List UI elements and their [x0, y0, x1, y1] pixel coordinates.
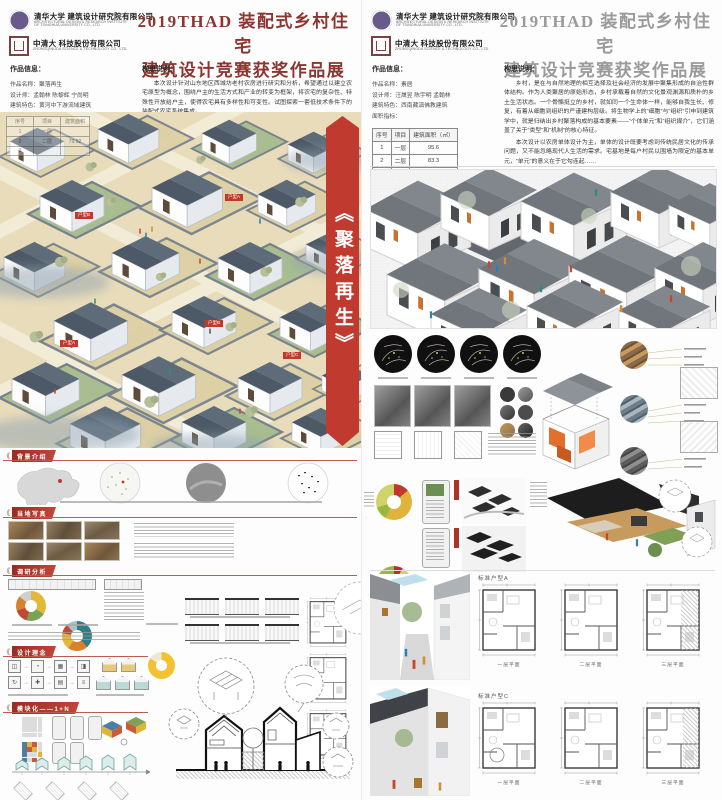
site-dot-map-circle	[100, 463, 140, 503]
growth-timeline	[10, 752, 150, 778]
house-type-tag: 户型C	[283, 352, 301, 359]
survey-donut-3-caption	[146, 623, 178, 625]
elevation-row-2	[185, 624, 299, 641]
circle-caption	[464, 377, 494, 379]
tsinghua-emblem-icon	[371, 10, 392, 31]
village-illustration: 序号 项目 建筑面积 1一层 2二层79.92 3 户型A 户型B 户型B 户型…	[0, 112, 361, 448]
floor-plan	[559, 582, 623, 660]
floor-plan	[477, 700, 541, 778]
poster-title-line1: 2019THAD 装配式乡村住宅	[136, 10, 351, 59]
flow-icon: ◔	[31, 660, 44, 673]
plan-caption: 三层平面	[641, 661, 705, 668]
project-banner-text: 《聚落再生》	[329, 203, 356, 359]
tsinghua-emblem-icon	[9, 10, 30, 31]
house-prototype-icon	[102, 658, 117, 672]
photo-notes-lines	[134, 523, 234, 537]
site-analysis-band	[362, 333, 722, 477]
village-area-table: 序号 项目 建筑面积 1一层 2二层79.92 3	[6, 116, 90, 156]
section-mark: 《	[3, 705, 10, 712]
circle-caption	[507, 377, 537, 379]
donut-tick-labels	[364, 492, 374, 508]
module-cards-row1	[52, 716, 102, 740]
elevation-chip	[265, 598, 299, 615]
floor-plan-cell: 三层平面	[641, 700, 705, 786]
elevation-chip	[225, 598, 259, 615]
floor-plan-cell: 一层平面	[477, 582, 541, 668]
section-mark: 《	[3, 510, 10, 517]
construction-detail-sketch	[680, 421, 718, 453]
background-graphics	[8, 463, 353, 505]
floor-plan	[641, 700, 705, 778]
poster-title-line1: 2019THAD 装配式乡村住宅	[498, 10, 713, 59]
prototype-caption-line	[96, 694, 144, 696]
texture-circle	[500, 387, 515, 402]
local-photo	[84, 521, 120, 540]
elevation-chip	[265, 624, 299, 641]
material-circle-wall	[620, 395, 648, 423]
site-model-a	[462, 478, 526, 524]
plan-caption: 一层平面	[477, 779, 541, 786]
module-cluster-icons	[100, 714, 148, 748]
module-card	[52, 716, 66, 740]
iso-plan-diamond	[13, 781, 33, 800]
bw-photo	[374, 385, 411, 427]
site-analysis-circle	[374, 335, 412, 373]
floor-plan-cell: 一层平面	[477, 700, 541, 786]
type-a-donut	[376, 484, 412, 520]
building-section-drawing	[168, 652, 358, 797]
plan-row-2: 一层平面 二层平面 三层平面	[477, 700, 705, 786]
site-texture-circle	[288, 463, 328, 503]
material-circle-base	[620, 447, 648, 475]
street-perspective-2	[370, 686, 470, 796]
section-mark: 《	[3, 568, 10, 575]
elevation-chip	[185, 624, 219, 641]
org2-name-en: ZHONGQINGDA SCIENCE & TECHNOLOGY CO., LT…	[33, 48, 127, 52]
section-divider	[3, 712, 148, 713]
plan-sketch	[374, 431, 402, 459]
work-designers: 设计师：汪晟昱 陈宇明 孟翰林	[372, 91, 494, 102]
concept-text-p2: 本次设计以农房单体设计为主，单体的设计既要考虑到传统民居文化的传承问题，又不能忽…	[504, 139, 714, 167]
exhibition-board: 清华大学 建筑设计研究院有限公司 ARCHITECTURAL DESIGN & …	[0, 0, 722, 800]
texture-circle	[518, 405, 533, 420]
section-divider	[3, 656, 148, 657]
house-prototype-row-yellow	[102, 658, 136, 672]
elevation-chip	[185, 598, 219, 615]
floor-plan	[477, 582, 541, 660]
texture-circle	[500, 405, 515, 420]
house-type-tag: 户型A	[225, 194, 243, 201]
section-mark: 《	[3, 649, 10, 656]
elevation-caption-line	[190, 642, 290, 644]
work-name: 作品名称：聚落再生	[10, 80, 132, 91]
concept-heading: 构思说明：	[504, 64, 714, 74]
local-photo	[8, 542, 44, 561]
legend-photo-chip	[426, 484, 444, 496]
org2-name-en: ZHONGQINGDA SCIENCE & TECHNOLOGY CO., LT…	[395, 48, 489, 52]
iso-plan-diamond	[45, 781, 65, 800]
work-info-heading: 作品信息：	[10, 64, 132, 74]
flow-icon: ↻	[8, 676, 21, 689]
work-area-label: 面积指标：	[372, 112, 494, 123]
work-designers: 设计师：孟翰林 陈黎辉 宁尚明	[10, 91, 132, 102]
flow-caption-line	[8, 694, 68, 696]
flow-icon: ≡	[77, 676, 90, 689]
work-feature: 建筑特色：黄河中下游流域建筑	[10, 101, 132, 112]
plan-caption: 三层平面	[641, 779, 705, 786]
elevation-caption-line	[190, 616, 290, 618]
module-card	[70, 716, 84, 740]
house-type-tag: 户型B	[205, 320, 223, 327]
ov-h1: 序号	[7, 117, 34, 127]
plan-sketch	[414, 431, 442, 459]
zhongqingda-emblem-icon	[9, 36, 29, 56]
flow-icon: ▦	[54, 660, 67, 673]
elevation-row-1	[185, 598, 299, 615]
survey-table-strip	[8, 579, 96, 590]
house-type-tag: 户型A	[60, 340, 78, 347]
material-leader-lines	[648, 341, 718, 477]
iso-plan-diamonds	[14, 782, 128, 800]
survey-donut-1	[16, 591, 46, 621]
local-photo	[46, 542, 82, 561]
plan-caption: 一层平面	[477, 661, 541, 668]
legend-icon-lines	[426, 500, 444, 518]
survey-donut-2-caption	[58, 624, 98, 626]
project-banner: 《聚落再生》	[326, 116, 359, 446]
red-seal-tag	[454, 528, 459, 548]
floor-plan-cell: 三层平面	[641, 582, 705, 668]
interior-cutaway-render	[547, 478, 717, 568]
plan-row-2-label: 标准户型C	[478, 692, 509, 700]
survey-notes-lines	[104, 592, 144, 622]
house-prototype-icon	[134, 676, 149, 690]
floor-plan	[559, 700, 623, 778]
local-photo	[8, 521, 44, 540]
flow-icon: ◨	[77, 660, 90, 673]
plan-sketch	[454, 431, 482, 459]
local-photo	[84, 542, 120, 561]
section-divider	[3, 575, 357, 576]
house-type-tag: 户型B	[75, 212, 93, 219]
plan-row-1: 一层平面 二层平面 三层平面	[477, 582, 705, 668]
aerial-render	[370, 169, 717, 329]
bw-photo	[414, 385, 451, 427]
house-prototype-row-teal	[96, 676, 149, 690]
work-feature: 建筑特色：西南藏滇佛教建筑	[372, 101, 494, 112]
aerial-render-svg	[371, 170, 716, 328]
plan-row-1-label: 标准户型A	[478, 574, 509, 582]
village-axonometric	[0, 112, 361, 448]
poster-juluo-zaisheng: 清华大学 建筑设计研究院有限公司 ARCHITECTURAL DESIGN & …	[0, 0, 361, 800]
background-caption-line	[60, 501, 322, 503]
iso-plan-diamond	[77, 781, 97, 800]
survey-table-strip	[104, 579, 142, 590]
analysis-notes-lines	[488, 433, 536, 457]
flow-icon: ◫	[8, 660, 21, 673]
house-prototype-icon	[121, 658, 136, 672]
bottom-divider	[370, 570, 715, 571]
exploded-axon	[537, 369, 615, 475]
elevation-chip	[225, 624, 259, 641]
ov-h3: 建筑面积	[61, 117, 90, 127]
red-seal-tag	[454, 480, 459, 500]
section-mark: 《	[3, 453, 10, 460]
site-analysis-circle	[460, 335, 498, 373]
floor-plan-cell: 二层平面	[559, 700, 623, 786]
floor-plan-cell: 二层平面	[559, 582, 623, 668]
section-divider	[3, 460, 357, 461]
circle-caption	[378, 377, 408, 379]
concept-text-p1: 乡村，是在与自然地理的相互选择及社会经济的发展中聚集形成的自治性群体结构。作为人…	[504, 80, 714, 137]
work-info-heading: 作品信息：	[372, 64, 494, 74]
china-map	[18, 468, 79, 505]
site-analysis-circle	[417, 335, 455, 373]
floor-plan	[641, 582, 705, 660]
info-divider	[370, 166, 715, 167]
plan-caption: 二层平面	[559, 779, 623, 786]
street-perspective-1	[370, 574, 470, 680]
concept-heading: 构思说明：	[142, 64, 352, 74]
type-analysis-band	[362, 478, 722, 568]
survey-donut-1-caption	[12, 624, 52, 626]
iso-plan-diamond	[109, 781, 129, 800]
local-photo-grid	[8, 521, 126, 562]
survey-summary-lines	[8, 632, 140, 642]
ov-h2: 项目	[34, 117, 61, 127]
material-circle-roof	[620, 341, 648, 369]
module-grid-plain	[22, 717, 42, 737]
bw-photo	[454, 385, 491, 427]
construction-detail-sketch	[680, 367, 718, 399]
house-prototype-icon	[115, 676, 130, 690]
circle-caption	[421, 377, 451, 379]
photo-notes-lines	[134, 543, 234, 560]
local-photo	[46, 521, 82, 540]
poster-su-ju: 清华大学 建筑设计研究院有限公司 ARCHITECTURAL DESIGN & …	[361, 0, 722, 800]
texture-circle-cluster	[500, 387, 533, 438]
flow-icon: ✚	[31, 676, 44, 689]
zhongqingda-emblem-icon	[371, 36, 391, 56]
work-name: 作品名称：素居	[372, 80, 494, 91]
china-map-and-circles	[8, 463, 353, 505]
plan-caption: 二层平面	[559, 661, 623, 668]
site-analysis-circle	[503, 335, 541, 373]
design-flow-row-2: ↻→ ✚→ ▤→ ≡	[8, 676, 96, 689]
house-prototype-icon	[96, 676, 111, 690]
flow-icon: ▤	[54, 676, 67, 689]
detail-callout-circle	[330, 580, 361, 636]
texture-circle	[518, 387, 533, 402]
section-divider	[3, 517, 357, 518]
legend-icon-lines	[426, 532, 444, 562]
site-model-c	[462, 526, 526, 572]
design-flow-row-1: ◫→ ◔→ ▦→ ◨	[8, 660, 96, 673]
